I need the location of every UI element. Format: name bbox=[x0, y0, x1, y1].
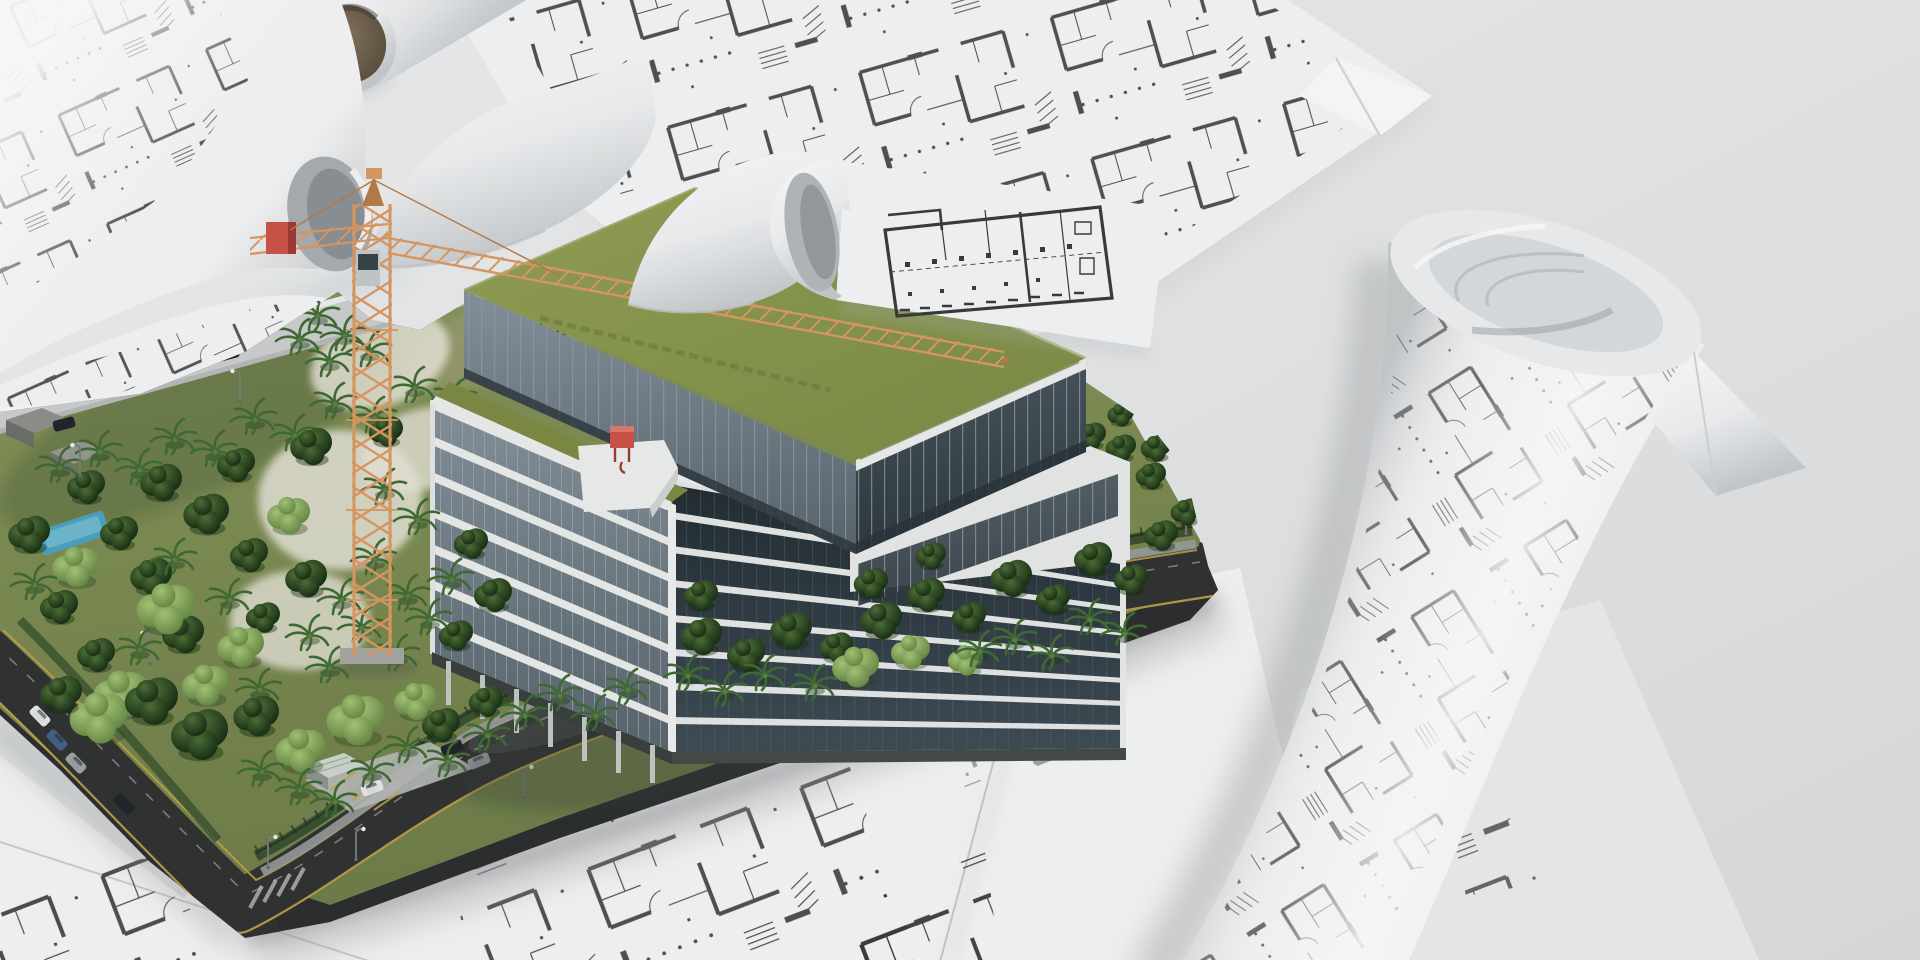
architectural-render bbox=[0, 0, 1920, 960]
vignette bbox=[0, 0, 1920, 960]
architectural-render-stage bbox=[0, 0, 1920, 960]
